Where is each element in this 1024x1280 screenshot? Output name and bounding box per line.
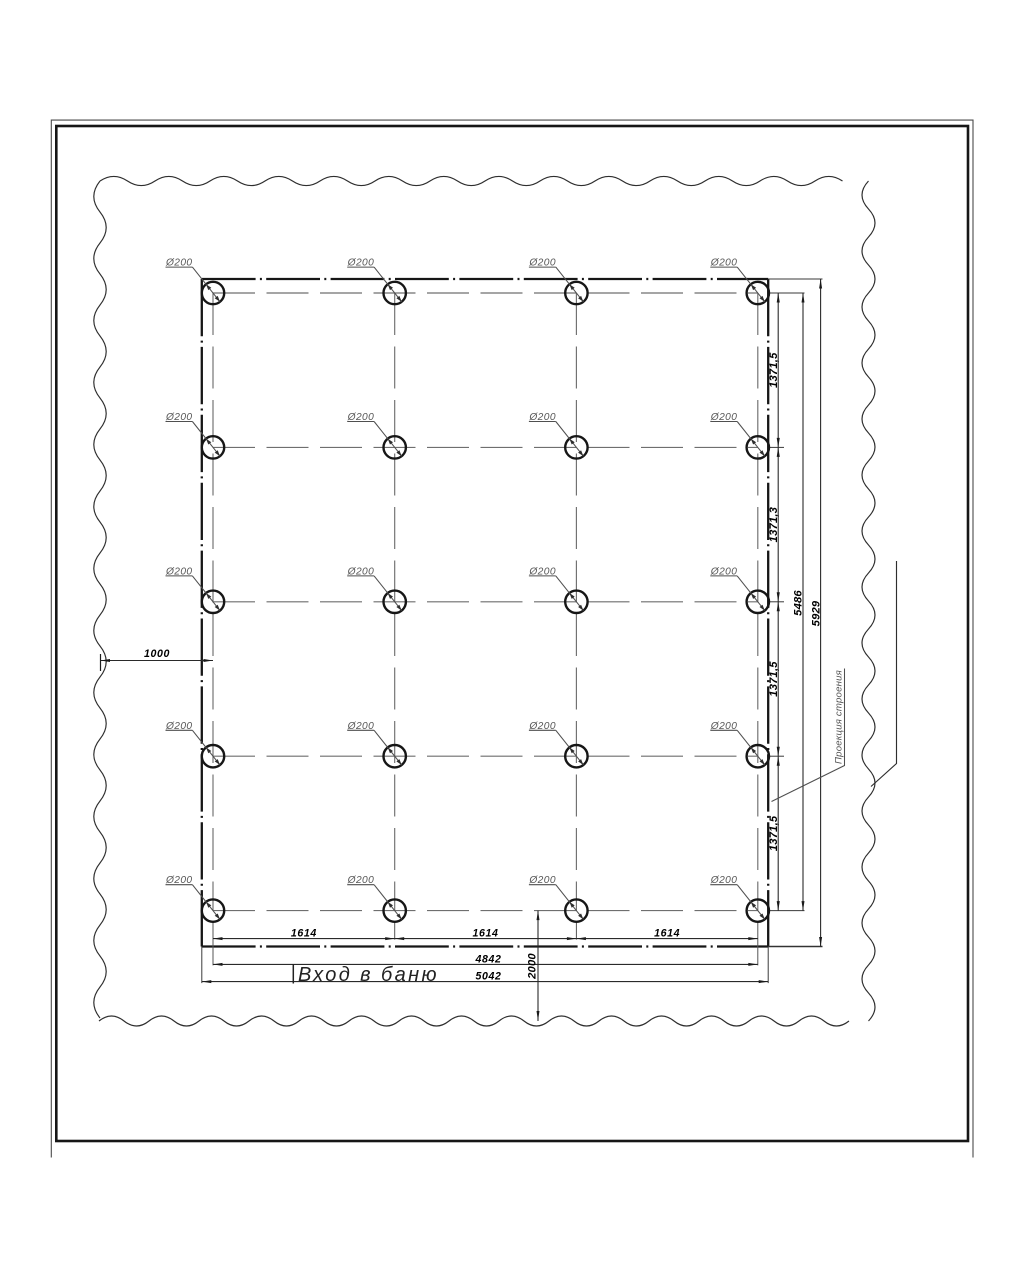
svg-text:1614: 1614: [654, 927, 680, 939]
svg-text:Ø200: Ø200: [710, 875, 738, 886]
svg-text:5929: 5929: [810, 600, 822, 626]
svg-text:Ø200: Ø200: [165, 258, 193, 269]
svg-text:Ø200: Ø200: [528, 875, 556, 886]
svg-text:Ø200: Ø200: [347, 412, 375, 423]
svg-text:1614: 1614: [291, 927, 317, 939]
svg-text:1000: 1000: [144, 648, 170, 660]
svg-text:1371,5: 1371,5: [768, 661, 780, 697]
svg-text:Ø200: Ø200: [528, 412, 556, 423]
svg-text:5042: 5042: [476, 970, 502, 982]
svg-text:Ø200: Ø200: [528, 721, 556, 732]
svg-text:Ø200: Ø200: [347, 566, 375, 577]
svg-text:1371,3: 1371,3: [768, 506, 780, 542]
svg-text:Ø200: Ø200: [528, 258, 556, 269]
svg-text:Ø200: Ø200: [347, 721, 375, 732]
svg-text:Ø200: Ø200: [347, 875, 375, 886]
svg-text:Ø200: Ø200: [165, 566, 193, 577]
svg-text:Вход в баню: Вход в баню: [298, 964, 439, 986]
svg-text:Ø200: Ø200: [710, 721, 738, 732]
svg-text:Ø200: Ø200: [710, 412, 738, 423]
svg-text:1371,5: 1371,5: [768, 815, 780, 851]
svg-text:Проекция строения: Проекция строения: [834, 670, 845, 764]
svg-text:1371,5: 1371,5: [768, 352, 780, 388]
svg-text:5486: 5486: [793, 590, 805, 616]
svg-text:Ø200: Ø200: [710, 566, 738, 577]
svg-text:Ø200: Ø200: [528, 566, 556, 577]
svg-text:1614: 1614: [473, 927, 499, 939]
svg-text:Ø200: Ø200: [165, 875, 193, 886]
svg-text:Ø200: Ø200: [165, 721, 193, 732]
svg-text:2000: 2000: [526, 953, 538, 980]
svg-text:Ø200: Ø200: [710, 258, 738, 269]
svg-text:Ø200: Ø200: [347, 258, 375, 269]
svg-text:Ø200: Ø200: [165, 412, 193, 423]
svg-text:4842: 4842: [475, 953, 502, 965]
